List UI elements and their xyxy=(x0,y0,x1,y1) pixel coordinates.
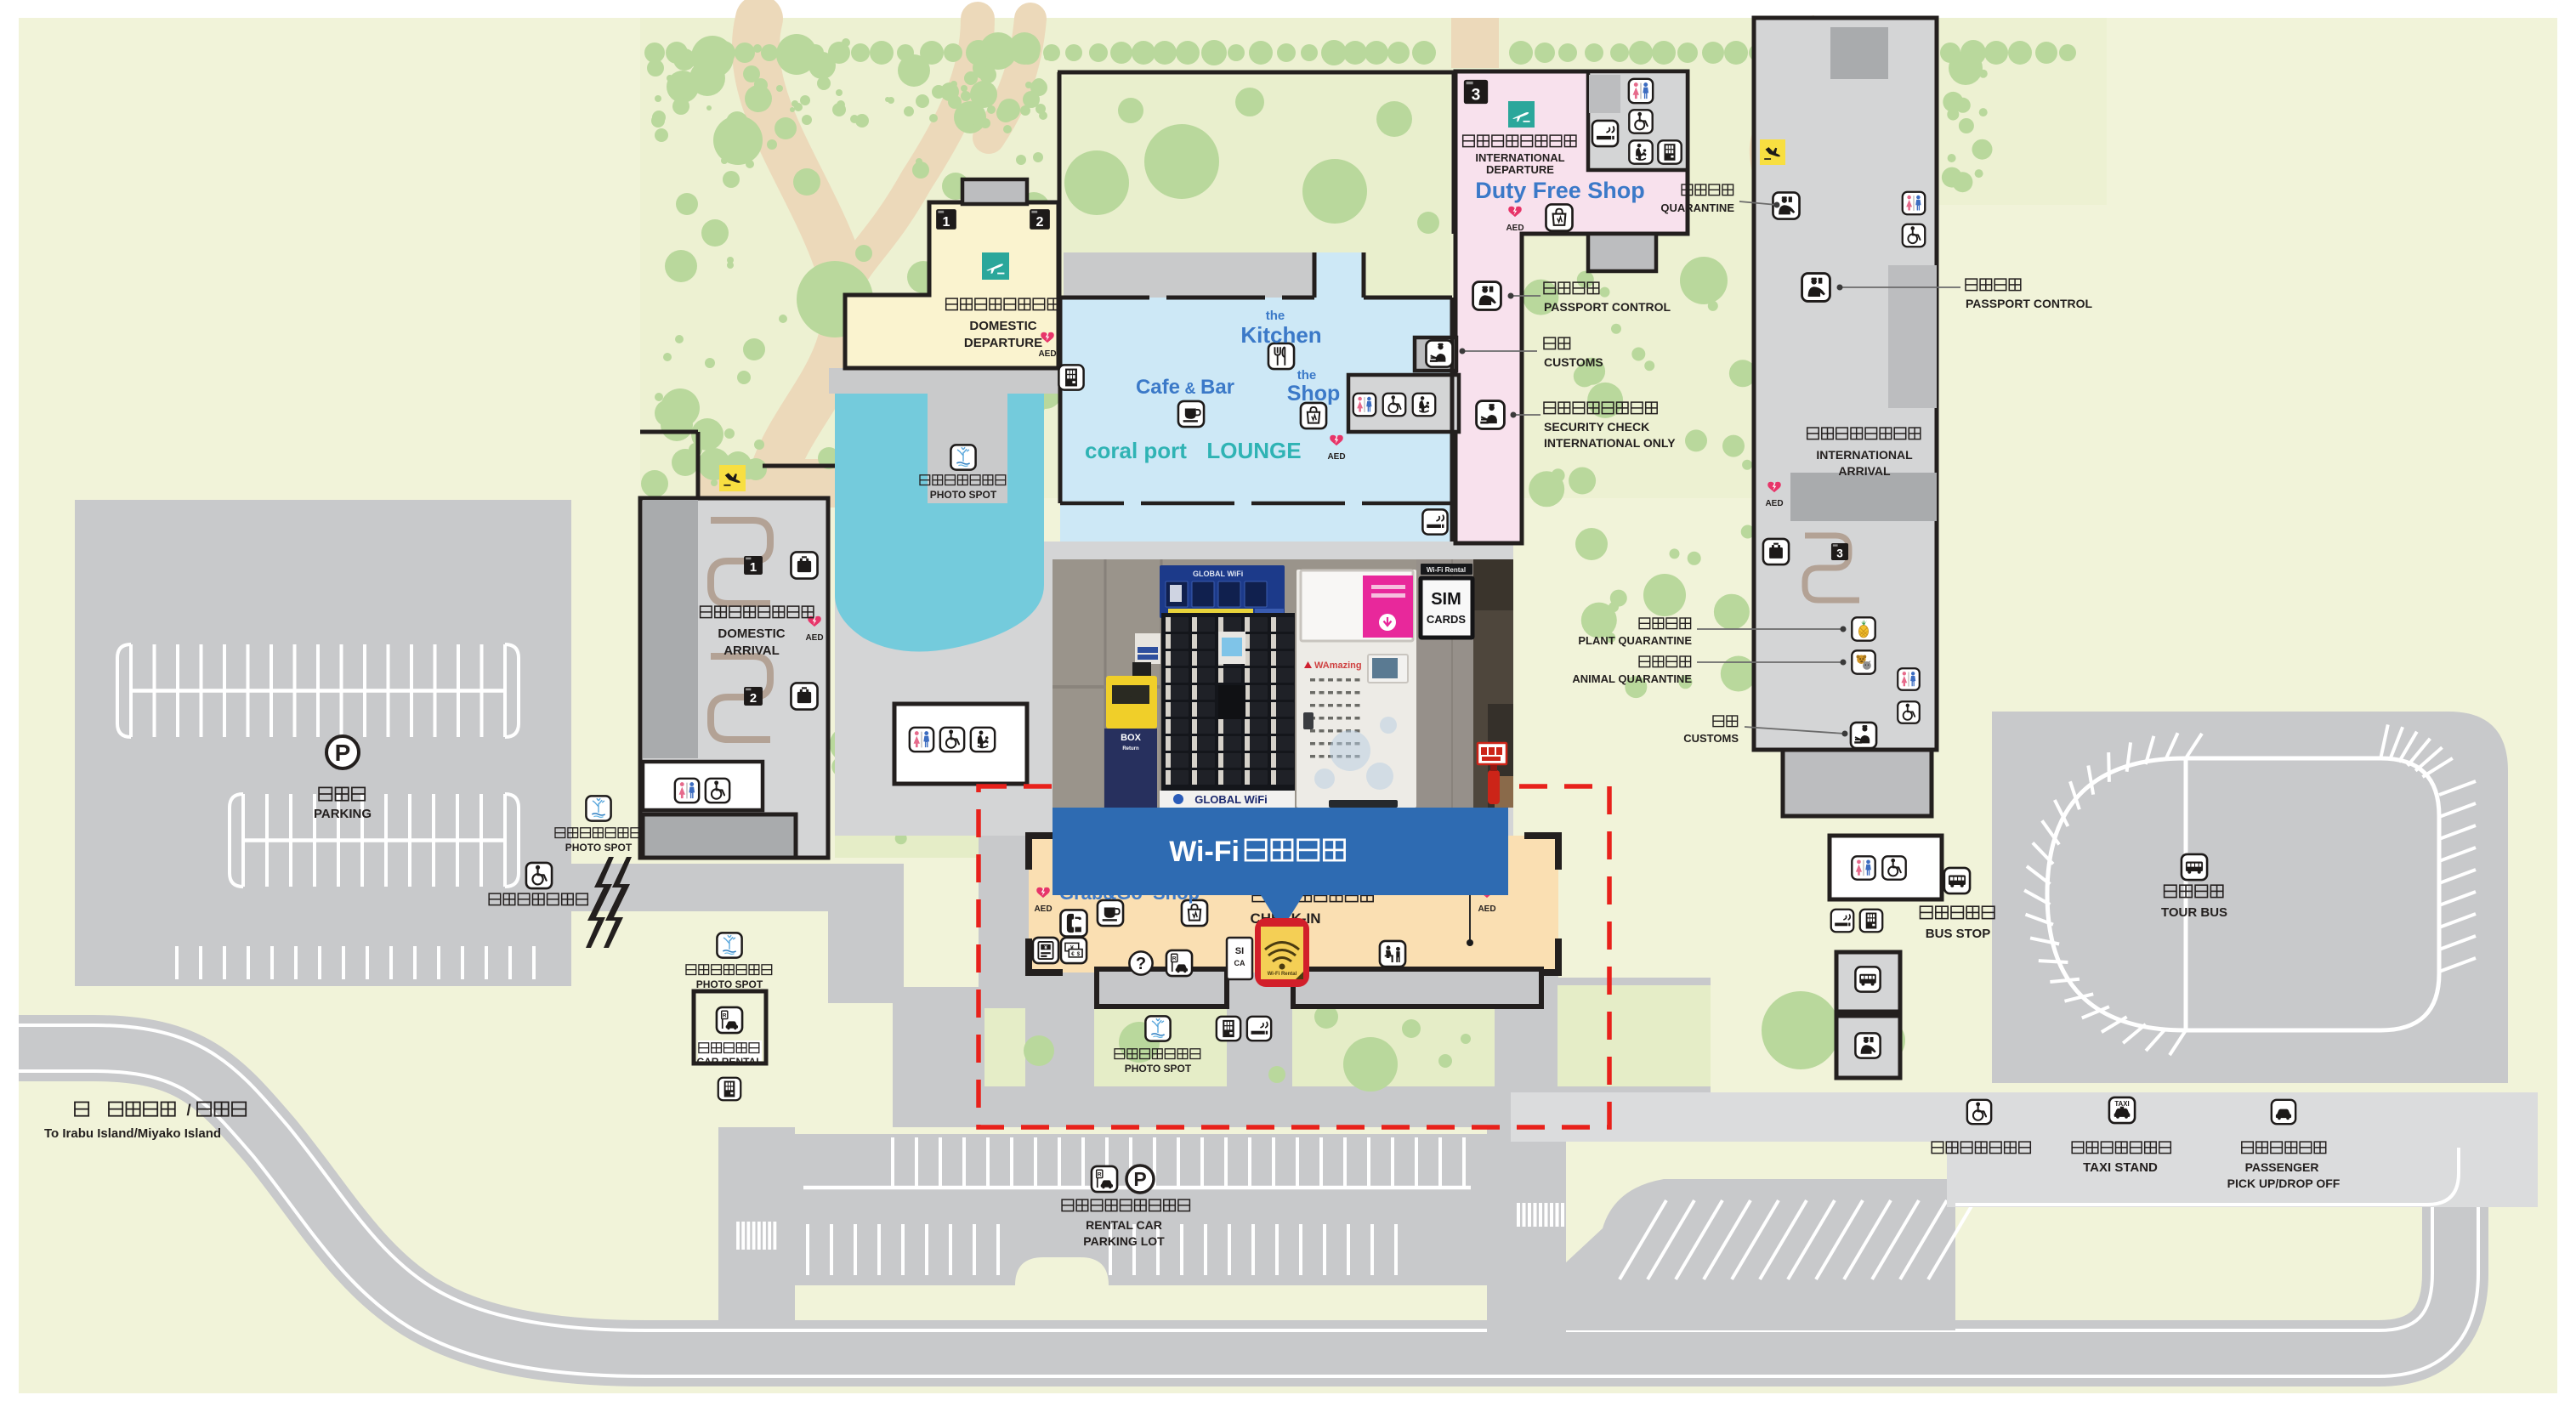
svg-text:GLOBAL WiFi: GLOBAL WiFi xyxy=(1194,793,1268,806)
svg-text:AED: AED xyxy=(1038,349,1056,359)
svg-text:PASSPORT CONTROL: PASSPORT CONTROL xyxy=(1544,300,1671,314)
svg-text:CARDS: CARDS xyxy=(1427,613,1467,626)
svg-text:Kitchen: Kitchen xyxy=(1240,322,1321,348)
svg-text:CA: CA xyxy=(1234,959,1245,967)
svg-text:AED: AED xyxy=(1506,224,1523,233)
svg-text:WAmazing: WAmazing xyxy=(1314,661,1362,671)
svg-text:1: 1 xyxy=(943,214,950,230)
svg-text:QUARANTINE: QUARANTINE xyxy=(1660,201,1734,214)
svg-text:3: 3 xyxy=(1836,547,1843,560)
svg-text:To Irabu Island/Miyako Island: To Irabu Island/Miyako Island xyxy=(44,1126,221,1141)
svg-text:ANIMAL QUARANTINE: ANIMAL QUARANTINE xyxy=(1572,672,1692,685)
svg-text:GLOBAL WiFi: GLOBAL WiFi xyxy=(1193,570,1243,578)
svg-text:PHOTO SPOT: PHOTO SPOT xyxy=(565,842,633,853)
svg-text:PARKING LOT: PARKING LOT xyxy=(1083,1234,1165,1248)
svg-text:Cafe: Cafe xyxy=(1136,376,1180,399)
svg-text:PASSENGER: PASSENGER xyxy=(2245,1160,2319,1174)
svg-text:CUSTOMS: CUSTOMS xyxy=(1544,355,1603,369)
svg-text:1: 1 xyxy=(750,561,757,575)
svg-text:INTERNATIONAL ONLY: INTERNATIONAL ONLY xyxy=(1544,436,1676,450)
svg-text:TAXI STAND: TAXI STAND xyxy=(2083,1160,2158,1175)
svg-text:TOUR BUS: TOUR BUS xyxy=(2161,905,2227,920)
svg-text:Shop: Shop xyxy=(1287,382,1341,405)
svg-text:Wi-Fi Rental: Wi-Fi Rental xyxy=(1268,972,1297,977)
svg-text:Wi-Fi Rental: Wi-Fi Rental xyxy=(1427,566,1466,574)
svg-text:DEPARTURE: DEPARTURE xyxy=(1486,163,1554,176)
svg-text:P: P xyxy=(1133,1168,1146,1190)
svg-text:3: 3 xyxy=(1472,86,1481,104)
svg-text:P: P xyxy=(335,740,351,766)
svg-text:ARRIVAL: ARRIVAL xyxy=(1838,464,1891,478)
svg-text:INTERNATIONAL: INTERNATIONAL xyxy=(1816,448,1913,462)
svg-text:PICK UP/DROP OFF: PICK UP/DROP OFF xyxy=(2227,1177,2341,1190)
svg-text:AED: AED xyxy=(1765,499,1783,508)
svg-text:LOUNGE: LOUNGE xyxy=(1206,438,1301,463)
svg-text:DOMESTIC: DOMESTIC xyxy=(969,319,1036,333)
svg-text:PHOTO SPOT: PHOTO SPOT xyxy=(930,489,997,501)
svg-text:/: / xyxy=(186,1102,190,1119)
svg-text:AED: AED xyxy=(1327,452,1345,462)
svg-text:AED: AED xyxy=(1478,904,1495,914)
svg-text:2: 2 xyxy=(750,692,757,706)
svg-text:SI: SI xyxy=(1235,946,1244,956)
svg-text:&: & xyxy=(1185,380,1196,397)
svg-text:the: the xyxy=(1266,309,1285,323)
svg-text:Wi-Fi: Wi-Fi xyxy=(1169,836,1240,868)
svg-text:RENTAL CAR: RENTAL CAR xyxy=(1086,1218,1162,1232)
svg-text:ARRIVAL: ARRIVAL xyxy=(723,644,780,658)
svg-text:PHOTO SPOT: PHOTO SPOT xyxy=(696,978,763,990)
svg-text:2: 2 xyxy=(1036,214,1044,230)
svg-text:Duty Free Shop: Duty Free Shop xyxy=(1475,178,1645,203)
svg-text:SECURITY CHECK: SECURITY CHECK xyxy=(1544,420,1649,434)
svg-text:SIM: SIM xyxy=(1431,590,1461,609)
svg-text:CUSTOMS: CUSTOMS xyxy=(1683,732,1739,745)
svg-text:PLANT QUARANTINE: PLANT QUARANTINE xyxy=(1578,634,1692,647)
svg-text:PHOTO SPOT: PHOTO SPOT xyxy=(1125,1063,1192,1075)
svg-text:BUS STOP: BUS STOP xyxy=(1926,927,1990,941)
svg-text:PARKING: PARKING xyxy=(314,807,372,821)
svg-text:DEPARTURE: DEPARTURE xyxy=(964,336,1042,350)
svg-text:AED: AED xyxy=(805,633,823,643)
svg-text:coral port: coral port xyxy=(1085,438,1187,463)
svg-text:PASSPORT CONTROL: PASSPORT CONTROL xyxy=(1966,297,2093,310)
svg-text:CAR RENTAL: CAR RENTAL xyxy=(696,1056,762,1068)
svg-text:BOX: BOX xyxy=(1121,733,1142,743)
svg-text:the: the xyxy=(1297,368,1317,383)
svg-text:DOMESTIC: DOMESTIC xyxy=(718,627,785,641)
svg-text:Return: Return xyxy=(1122,746,1139,751)
svg-text:Bar: Bar xyxy=(1200,376,1234,399)
svg-text:INTERNATIONAL: INTERNATIONAL xyxy=(1475,151,1564,164)
svg-text:AED: AED xyxy=(1034,904,1052,914)
